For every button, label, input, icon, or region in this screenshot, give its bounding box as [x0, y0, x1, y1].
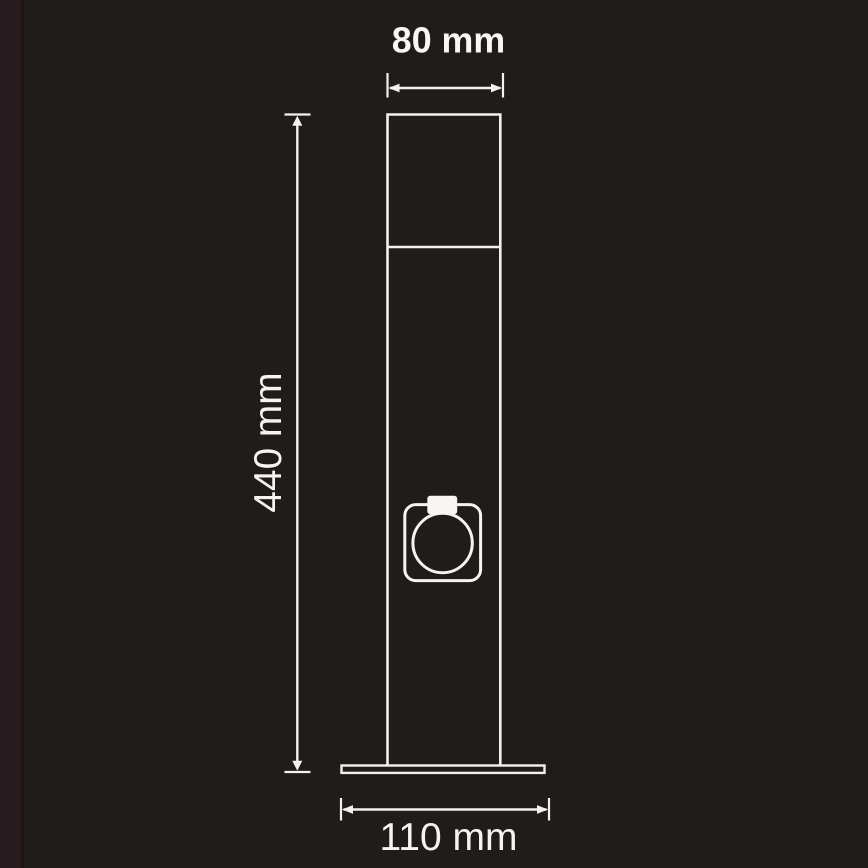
svg-text:110 mm: 110 mm [380, 816, 518, 859]
svg-text:440 mm: 440 mm [247, 372, 290, 512]
svg-text:80 mm: 80 mm [392, 21, 505, 61]
